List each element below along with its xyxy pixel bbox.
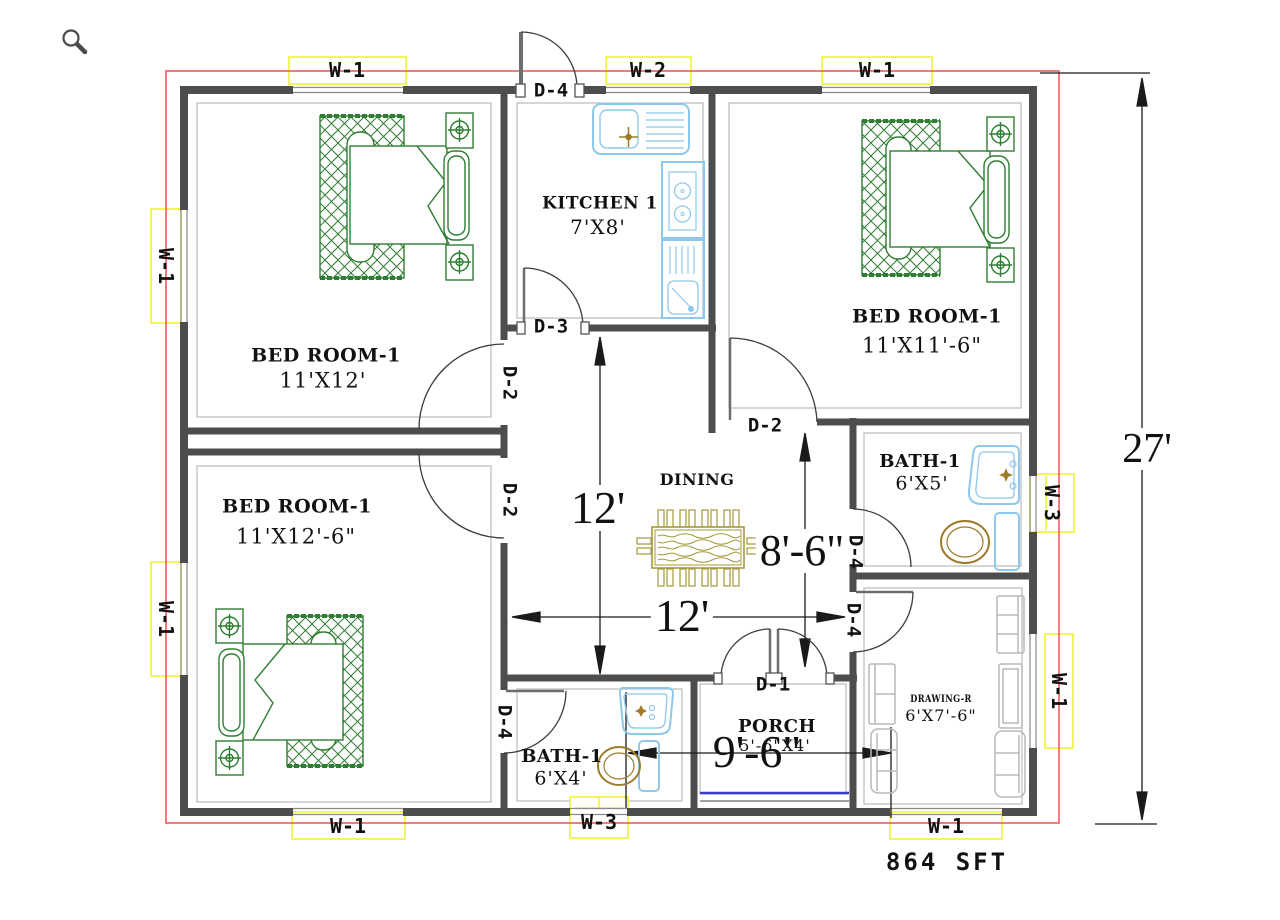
window-label-right-lower: W-1: [1049, 673, 1069, 709]
dim-bottom-horizontal: 9'-6": [713, 729, 801, 775]
door-label-porch: D-1: [756, 676, 790, 695]
door-swings: [419, 32, 913, 753]
floor-plan-canvas: [0, 0, 1280, 920]
room-label-kitchen: KITCHEN 1: [542, 196, 658, 213]
dim-overall-height: 27': [1118, 428, 1176, 470]
window-label-bottom-left: W-1: [330, 816, 366, 836]
floor-plan-page: { "plan": { "area_label": "864 SFT", "ro…: [0, 0, 1280, 920]
dim-dining-horizontal: 12': [651, 593, 713, 639]
room-dims-bath-tr: 6'X5': [895, 475, 948, 494]
room-dims-bedroom-bl: 11'X12'-6": [236, 527, 356, 548]
bath2-sink: [620, 688, 673, 734]
dim-dining-vertical: 12': [567, 485, 629, 531]
bath1-sink: [969, 446, 1019, 504]
room-dims-bath-b: 6'X4': [534, 770, 587, 789]
room-dims-bedroom-tr: 11'X11'-6": [862, 336, 982, 357]
room-label-bath-b: BATH-1: [521, 748, 603, 766]
door-label-drawing: D-4: [844, 603, 863, 637]
kitchen-faucet: [619, 127, 638, 147]
kitchen-appliance: [662, 240, 704, 318]
room-dims-bedroom-tl: 11'X12': [280, 371, 367, 392]
window-label-top-left: W-1: [329, 60, 365, 80]
room-label-dining: DINING: [660, 472, 735, 488]
bath1-toilet: [941, 513, 1019, 570]
stove: [662, 162, 704, 238]
room-label-bedroom-tr: BED ROOM-1: [852, 308, 1002, 327]
window-label-left-lower: W-1: [156, 601, 176, 637]
window-label-top-right: W-1: [859, 60, 895, 80]
room-label-bath-tr: BATH-1: [879, 453, 961, 471]
window-label-right-upper: W-3: [1042, 485, 1062, 521]
kitchen-sink: [593, 104, 689, 154]
search-icon[interactable]: [64, 31, 86, 53]
door-label-bed-tl: D-2: [500, 366, 519, 400]
bed-bottom-left: [216, 609, 363, 775]
door-label-bath-b: D-4: [495, 705, 514, 739]
window-label-bottom-right: W-1: [928, 816, 964, 836]
room-label-drawing: DRAWING-R: [910, 695, 971, 705]
bed-top-right: [862, 117, 1014, 282]
room-dims-drawing: 6'X7'-6": [905, 708, 977, 724]
door-label-entry: D-4: [534, 82, 568, 101]
door-label-bath-tr: D-4: [846, 535, 865, 569]
dining-table: [637, 510, 761, 586]
door-label-bed-tr: D-2: [748, 417, 782, 436]
dim-right-vertical: 8'-6": [756, 529, 849, 573]
door-label-bed-bl: D-2: [500, 483, 519, 517]
bed-top-left: [320, 113, 473, 280]
window-label-left-upper: W-1: [156, 248, 176, 284]
window-label-top-mid: W-2: [630, 60, 666, 80]
room-dims-kitchen: 7'X8': [570, 217, 626, 237]
area-label: 864 SFT: [886, 850, 1008, 874]
window-label-bottom-mid: W-3: [581, 812, 617, 832]
room-label-bedroom-bl: BED ROOM-1: [222, 498, 372, 517]
door-label-kitchen: D-3: [534, 318, 568, 337]
porch-threshold: [700, 793, 849, 801]
room-label-bedroom-tl: BED ROOM-1: [251, 347, 401, 366]
